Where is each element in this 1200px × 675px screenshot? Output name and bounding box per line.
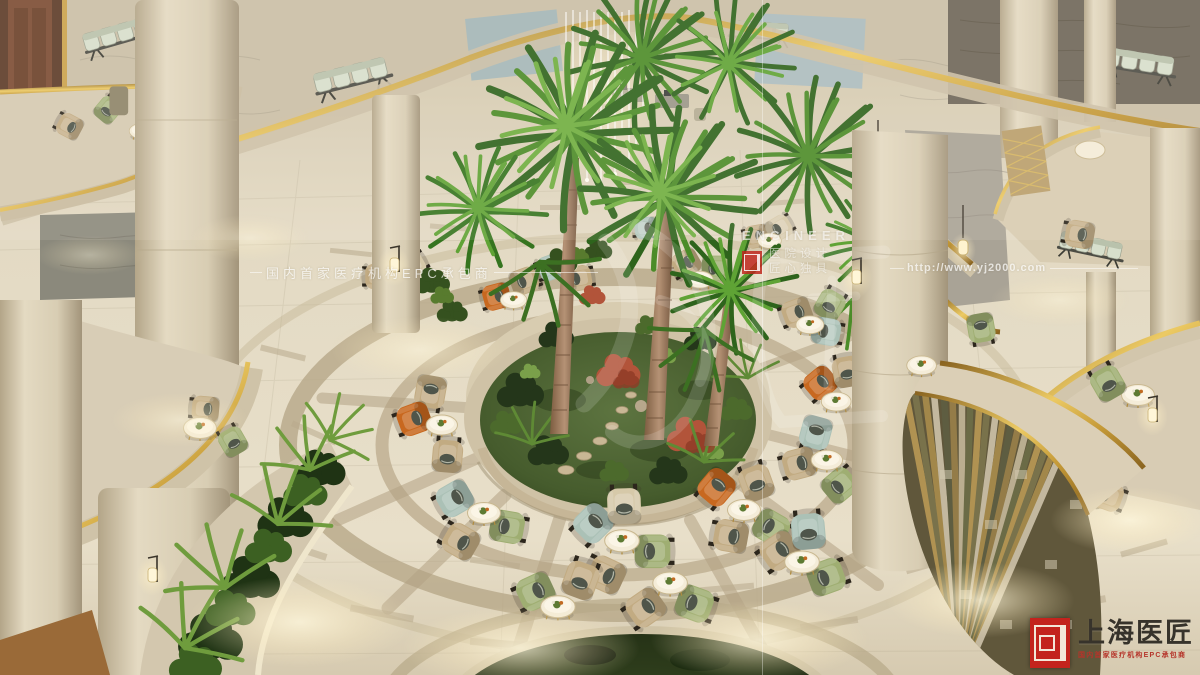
red-square-seal-icon	[1030, 618, 1070, 668]
watermark-line2: 匠心独具	[769, 262, 831, 277]
watermark-rule	[1050, 268, 1138, 269]
watermark-left: 国内首家医疗机构EPC承包商	[250, 263, 598, 282]
watermark-left-text: 国内首家医疗机构EPC承包商	[266, 263, 492, 282]
wall-sconce	[136, 556, 168, 596]
corner-logo: 上海医匠 国内首家医疗机构EPC承包商	[1030, 618, 1194, 668]
watermark-brand: ENGINEER	[742, 228, 850, 243]
logo-tagline: 国内首家医疗机构EPC承包商	[1078, 650, 1194, 660]
wall-sconce	[1136, 396, 1168, 436]
watermark-line1: 医院设计	[769, 247, 831, 262]
watermark-rule	[890, 268, 904, 269]
watermark-engineer-block: ENGINEER 医院设计 匠心独具	[742, 228, 850, 277]
watermark-rule	[250, 272, 262, 273]
logo-name: 上海医匠	[1078, 618, 1194, 648]
red-seal-icon	[742, 251, 762, 274]
watermark-vertical-line	[762, 0, 763, 675]
watermark-url-text: http://www.yj2000.com	[907, 262, 1046, 274]
watermark-url: http://www.yj2000.com	[890, 262, 1138, 274]
watermark-rule	[494, 272, 598, 273]
atrium-rendering: 国内首家医疗机构EPC承包商 ENGINEER 医院设计 匠心独具 http:/…	[0, 0, 1200, 675]
atrium-illustration	[0, 0, 1200, 675]
